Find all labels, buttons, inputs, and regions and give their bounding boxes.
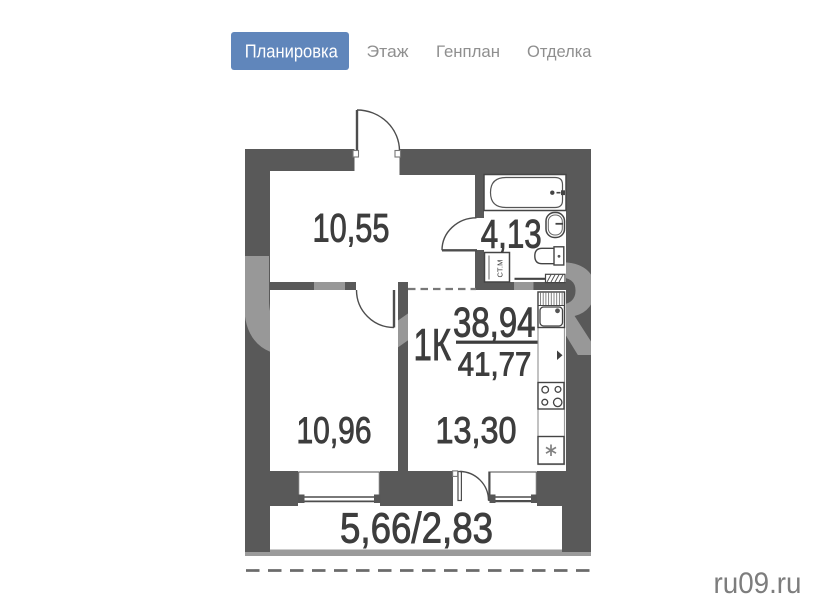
svg-text:ru09.ru: ru09.ru <box>714 567 802 600</box>
svg-text:Этаж: Этаж <box>367 42 410 61</box>
svg-text:Генплан: Генплан <box>436 42 500 61</box>
svg-text:Отделка: Отделка <box>527 42 592 61</box>
svg-text:Планировка: Планировка <box>245 40 339 61</box>
svg-text:41,77: 41,77 <box>458 346 532 383</box>
svg-text:4,13: 4,13 <box>481 213 542 257</box>
svg-text:10,55: 10,55 <box>313 206 390 250</box>
svg-text:СТ.М: СТ.М <box>496 259 505 277</box>
svg-text:13,30: 13,30 <box>436 410 517 451</box>
svg-text:38,94: 38,94 <box>453 298 536 345</box>
svg-text:10,96: 10,96 <box>297 410 372 451</box>
svg-text:1К: 1К <box>414 321 452 370</box>
svg-text:5,66/2,83: 5,66/2,83 <box>340 504 493 552</box>
